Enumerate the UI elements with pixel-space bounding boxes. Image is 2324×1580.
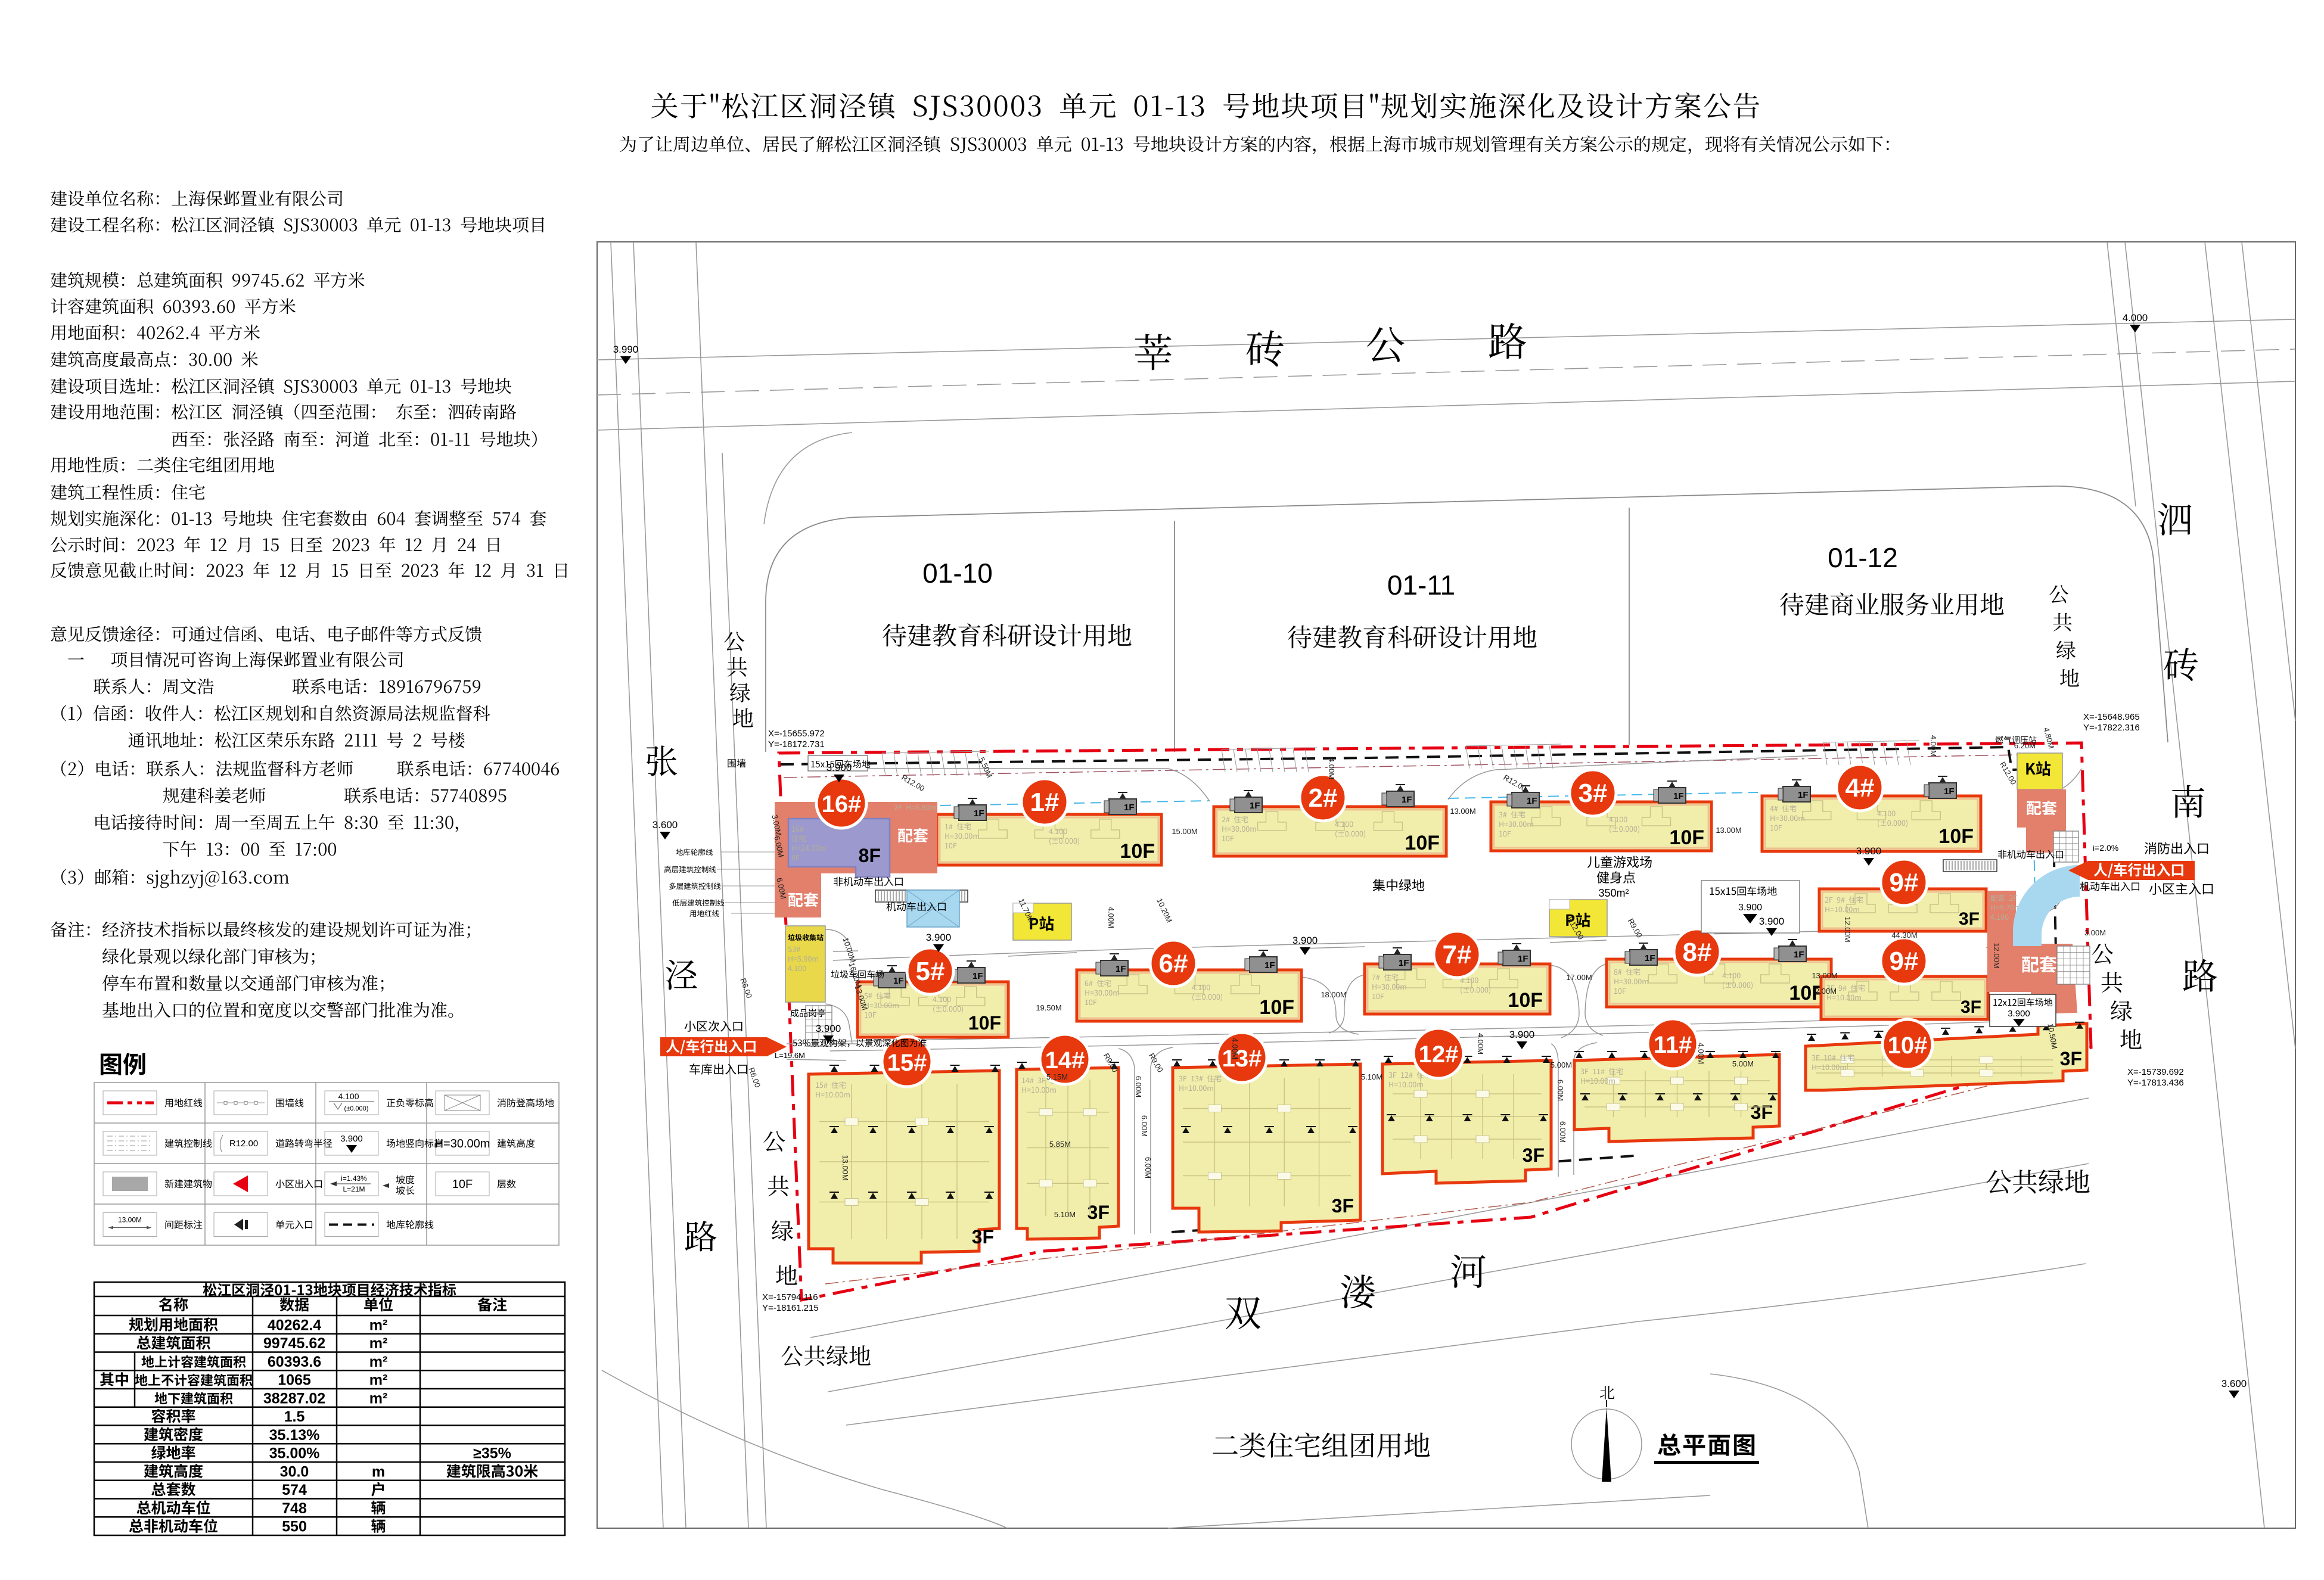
svg-text:2#: 2# [1309, 783, 1338, 813]
svg-text:14#: 14# [1045, 1047, 1085, 1074]
svg-text:4#: 4# [1845, 773, 1875, 803]
svg-text:Y=-18172.731: Y=-18172.731 [768, 739, 825, 749]
svg-text:4.100: 4.100 [338, 1091, 359, 1101]
svg-text:12.00M: 12.00M [1992, 943, 2001, 968]
svg-text:m²: m² [369, 1317, 388, 1333]
svg-text:3F: 3F [1961, 997, 1981, 1017]
svg-text:1F: 1F [1527, 796, 1537, 806]
svg-text:m: m [372, 1463, 385, 1480]
svg-text:4.00M: 4.00M [1107, 907, 1116, 928]
svg-text:15.00M: 15.00M [1172, 827, 1197, 836]
svg-text:3#: 3# [1579, 779, 1608, 808]
svg-text:3.900: 3.900 [1293, 935, 1318, 946]
svg-text:5.00M: 5.00M [1551, 1060, 1572, 1069]
svg-text:9#: 9# [1890, 947, 1919, 976]
svg-text:3.900: 3.900 [827, 762, 852, 773]
svg-text:8F: 8F [859, 845, 881, 866]
svg-text:6.20M: 6.20M [2014, 741, 2036, 750]
svg-text:19.50M: 19.50M [1036, 1003, 1061, 1012]
svg-text:8#: 8# [1683, 938, 1712, 967]
svg-text:1F: 1F [974, 808, 984, 819]
svg-text:2.00M: 2.00M [1815, 987, 1837, 996]
svg-text:44.30M: 44.30M [1891, 931, 1917, 940]
svg-text:6.00M: 6.00M [1134, 1076, 1143, 1097]
svg-text:3.900: 3.900 [340, 1134, 363, 1144]
svg-text:m²: m² [369, 1372, 388, 1389]
svg-text:3F: 3F [1332, 1195, 1354, 1217]
svg-text:4.00M: 4.00M [1476, 1033, 1485, 1055]
svg-text:3.900: 3.900 [2008, 1009, 2030, 1019]
svg-text:1F: 1F [1645, 953, 1655, 963]
svg-text:1F: 1F [1264, 960, 1275, 971]
svg-text:L=21M: L=21M [343, 1185, 365, 1193]
svg-text:1F: 1F [1399, 958, 1409, 968]
svg-text:3.900: 3.900 [1759, 916, 1785, 927]
svg-text:3.990: 3.990 [613, 344, 639, 355]
svg-text:5#: 5# [916, 957, 945, 986]
svg-text:(±0.000): (±0.000) [344, 1105, 369, 1112]
svg-text:1F: 1F [1944, 786, 1955, 797]
svg-text:10F: 10F [1120, 840, 1155, 863]
svg-text:13.00M: 13.00M [841, 1155, 850, 1180]
svg-text:6.00M: 6.00M [1144, 1157, 1152, 1178]
svg-text:≥35%: ≥35% [473, 1445, 511, 1462]
svg-text:4.00M: 4.00M [1231, 1038, 1239, 1059]
svg-text:3F: 3F [972, 1226, 994, 1248]
svg-text:1F: 1F [973, 971, 983, 981]
svg-text:X=-15794.116: X=-15794.116 [762, 1292, 818, 1302]
svg-text:38287.02: 38287.02 [263, 1390, 325, 1407]
svg-text:11#: 11# [1654, 1032, 1692, 1058]
svg-text:4.00M: 4.00M [1929, 735, 1938, 757]
svg-text:10F: 10F [1405, 832, 1440, 854]
svg-text:1065: 1065 [278, 1372, 311, 1389]
svg-text:m²: m² [369, 1390, 388, 1407]
svg-text:4.000: 4.000 [2123, 312, 2148, 324]
svg-text:10F: 10F [968, 1012, 1001, 1034]
svg-text:13.00M: 13.00M [118, 1216, 142, 1224]
svg-text:10F: 10F [1669, 826, 1704, 849]
svg-text:3F: 3F [1523, 1144, 1545, 1166]
svg-text:35.13%: 35.13% [269, 1427, 320, 1444]
svg-text:1F: 1F [1402, 795, 1412, 805]
svg-text:13#: 13# [1222, 1046, 1262, 1072]
svg-text:H=30.00m: H=30.00m [435, 1137, 490, 1150]
svg-text:13.00M: 13.00M [1450, 807, 1475, 816]
svg-text:5.10M: 5.10M [1054, 1210, 1076, 1219]
svg-text:17.00M: 17.00M [1566, 973, 1592, 982]
svg-text:99745.62: 99745.62 [263, 1335, 325, 1352]
svg-text:5.15M: 5.15M [1046, 1072, 1068, 1081]
svg-text:550: 550 [282, 1519, 307, 1535]
svg-text:i=2.0%: i=2.0% [2093, 843, 2118, 853]
svg-text:X=-15739.692: X=-15739.692 [2127, 1067, 2184, 1077]
svg-text:i=1.43%: i=1.43% [341, 1174, 367, 1183]
svg-text:60393.6: 60393.6 [268, 1354, 321, 1370]
svg-text:3F: 3F [1959, 909, 1980, 929]
svg-text:01-12: 01-12 [1828, 542, 1898, 573]
svg-text:10#: 10# [1888, 1032, 1928, 1059]
svg-text:1F: 1F [1794, 950, 1804, 960]
svg-text:1F: 1F [1673, 791, 1684, 801]
svg-text:3.600: 3.600 [2222, 1378, 2247, 1389]
svg-text:m²: m² [369, 1335, 388, 1352]
svg-text:350m²: 350m² [1598, 887, 1629, 899]
svg-text:16#: 16# [822, 791, 862, 817]
svg-text:X=-15655.972: X=-15655.972 [768, 729, 825, 739]
svg-text:1F: 1F [1518, 954, 1528, 964]
svg-text:X=-15648.965: X=-15648.965 [2083, 712, 2140, 722]
svg-text:6.00M: 6.00M [1556, 1080, 1565, 1101]
svg-text:30.0: 30.0 [280, 1463, 309, 1480]
svg-text:1#: 1# [1030, 788, 1060, 817]
svg-text:9#: 9# [1890, 868, 1919, 897]
svg-text:15#: 15# [887, 1050, 927, 1076]
svg-text:3F: 3F [1088, 1202, 1110, 1223]
svg-text:6#: 6# [1159, 949, 1188, 978]
svg-text:Y=-17813.436: Y=-17813.436 [2127, 1078, 2184, 1088]
svg-text:5.00M: 5.00M [1732, 1059, 1754, 1068]
svg-text:R12.00: R12.00 [229, 1139, 258, 1149]
svg-text:3F: 3F [1751, 1102, 1773, 1123]
svg-text:5.85M: 5.85M [1049, 1140, 1071, 1149]
svg-text:5.10M: 5.10M [1361, 1072, 1382, 1081]
svg-text:12#: 12# [1419, 1041, 1459, 1068]
svg-text:13.00M: 13.00M [1716, 826, 1741, 835]
svg-text:10F: 10F [452, 1178, 473, 1191]
svg-text:18.00M: 18.00M [1321, 990, 1346, 999]
svg-text:3.900: 3.900 [926, 932, 952, 943]
svg-text:1F: 1F [1124, 803, 1135, 813]
svg-text:1F: 1F [1116, 964, 1126, 974]
svg-text:3.900: 3.900 [816, 1023, 841, 1034]
svg-text:3.900: 3.900 [1738, 903, 1762, 913]
svg-text:1F: 1F [1798, 790, 1809, 800]
svg-text:3.900: 3.900 [1856, 845, 1882, 857]
svg-text:6.00M: 6.00M [1558, 1121, 1567, 1143]
svg-text:1.5: 1.5 [284, 1408, 305, 1425]
svg-text:1F: 1F [1250, 801, 1260, 811]
svg-text:10F: 10F [1508, 989, 1543, 1012]
svg-text:Y=-17822.316: Y=-17822.316 [2083, 723, 2140, 733]
svg-text:4.00M: 4.00M [1327, 758, 1336, 779]
svg-text:12.00M: 12.00M [1843, 916, 1852, 942]
svg-text:4.00M: 4.00M [1697, 1043, 1705, 1064]
svg-text:7#: 7# [1443, 940, 1472, 969]
svg-text:L=19.6M: L=19.6M [775, 1051, 805, 1060]
svg-text:m²: m² [369, 1354, 388, 1370]
svg-text:35.00%: 35.00% [269, 1445, 320, 1462]
svg-text:3F: 3F [2060, 1048, 2082, 1069]
svg-text:1F: 1F [893, 976, 904, 986]
svg-text:3.600: 3.600 [653, 819, 678, 831]
svg-text:10F: 10F [1259, 996, 1294, 1019]
svg-text:40262.4: 40262.4 [268, 1317, 321, 1333]
svg-text:10F: 10F [1938, 825, 1974, 848]
svg-text:01-10: 01-10 [922, 558, 993, 589]
svg-text:6.00M: 6.00M [1140, 1115, 1149, 1137]
svg-text:Y=-18161.215: Y=-18161.215 [762, 1303, 819, 1313]
svg-text:13.00M: 13.00M [1812, 971, 1837, 980]
svg-text:748: 748 [282, 1500, 307, 1517]
svg-text:3.00M: 3.00M [2084, 928, 2106, 937]
svg-text:574: 574 [282, 1482, 307, 1498]
svg-text:3.900: 3.900 [1509, 1029, 1535, 1040]
svg-text:01-11: 01-11 [1387, 570, 1455, 601]
